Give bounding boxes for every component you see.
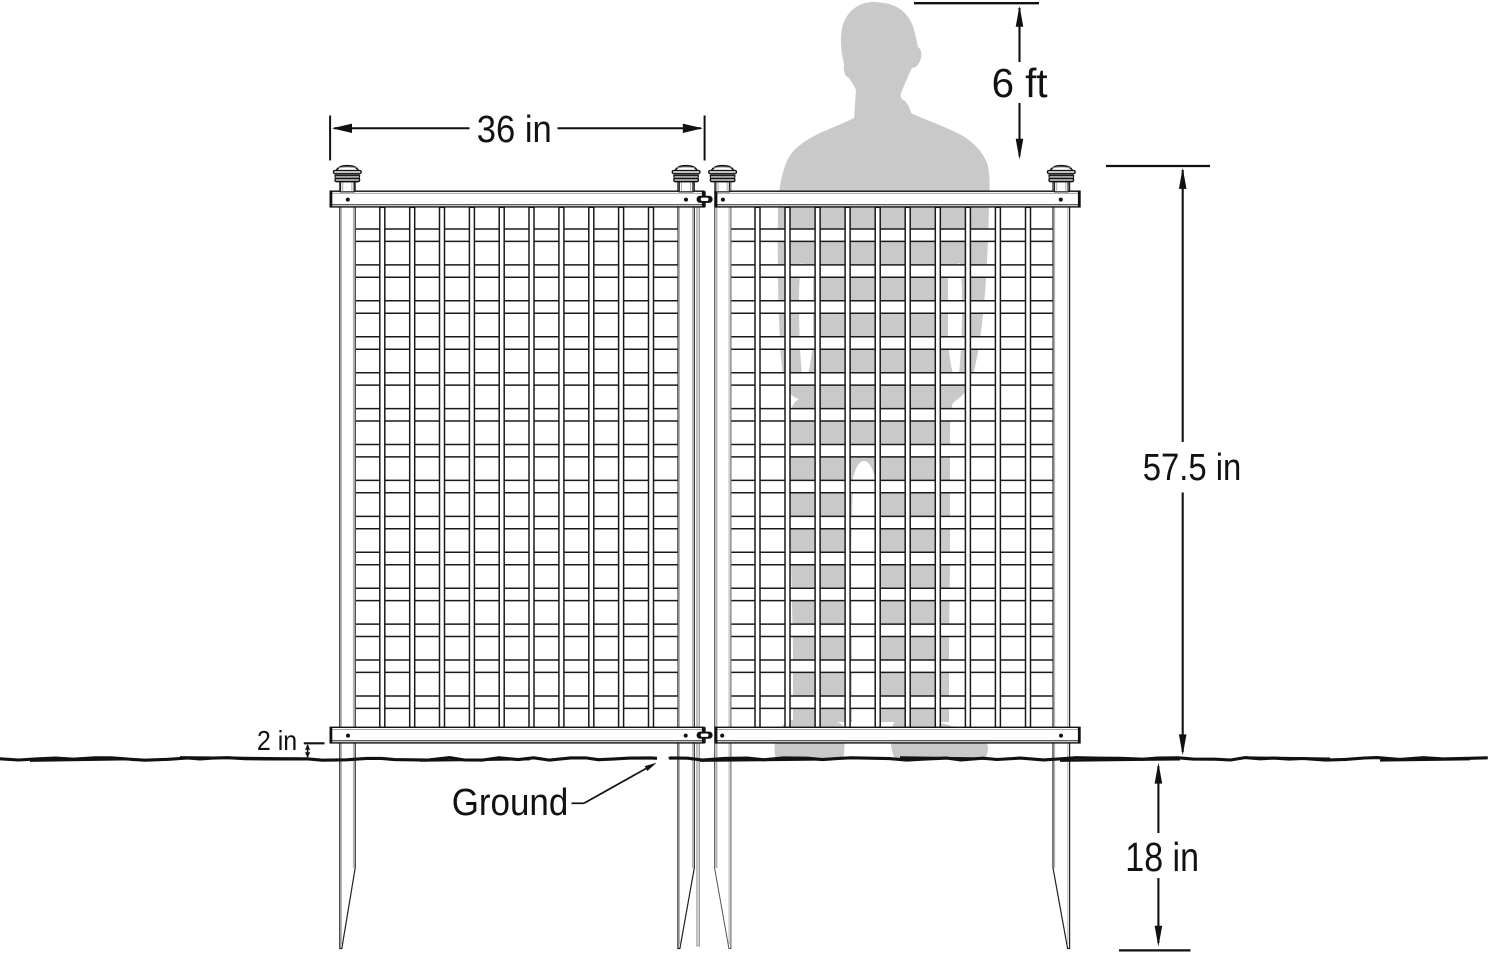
svg-text:36 in: 36 in xyxy=(477,109,552,151)
svg-text:57.5 in: 57.5 in xyxy=(1143,447,1242,489)
svg-text:18 in: 18 in xyxy=(1125,834,1199,880)
svg-text:6 ft: 6 ft xyxy=(992,60,1049,106)
svg-text:2 in: 2 in xyxy=(257,725,297,756)
svg-text:Ground: Ground xyxy=(452,782,569,824)
